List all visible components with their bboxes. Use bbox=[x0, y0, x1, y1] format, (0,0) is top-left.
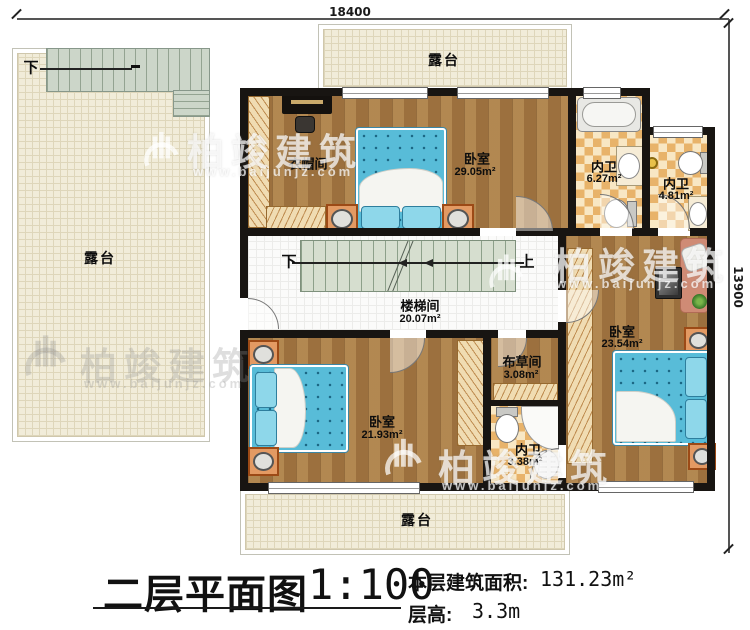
title-underline bbox=[93, 607, 401, 609]
bathtub bbox=[577, 97, 641, 132]
bath2-sink bbox=[689, 202, 707, 226]
stair-direction-line bbox=[40, 68, 132, 70]
watermark-site: www.baijunjz.com bbox=[84, 376, 244, 391]
wall-segment bbox=[526, 330, 566, 338]
window bbox=[457, 87, 549, 99]
dimension-line-top bbox=[17, 18, 729, 20]
stairs-arrow bbox=[424, 259, 433, 267]
brand-logo-icon bbox=[140, 126, 180, 178]
bedroom-top-label: 卧室 bbox=[464, 149, 490, 168]
terrace-top-label: 露台 bbox=[428, 50, 460, 70]
stair-direction-dash bbox=[131, 65, 140, 68]
bed-bottom-blanket bbox=[274, 368, 306, 448]
watermark-site: www.baijunjz.com bbox=[193, 164, 353, 179]
linen-room-area: 3.08m² bbox=[504, 369, 539, 381]
brand-logo-icon bbox=[380, 434, 424, 486]
bed-top-pillow bbox=[402, 206, 441, 229]
stairs-arrow bbox=[398, 259, 407, 267]
window bbox=[653, 126, 703, 138]
watermark: 柏竣建筑 www.baijunjz.com bbox=[135, 118, 385, 188]
wall-segment bbox=[568, 88, 576, 236]
bedroom-right-area: 23.54m² bbox=[602, 338, 643, 350]
bedroom-top-area: 29.05m² bbox=[455, 166, 496, 178]
bed-right-pillow bbox=[685, 357, 707, 397]
dimension-top-value: 18400 bbox=[329, 5, 371, 19]
plant bbox=[692, 294, 707, 309]
watermark: 柏竣建筑 www.baijunjz.com bbox=[380, 432, 630, 494]
wall-segment bbox=[248, 330, 390, 338]
watermark-site: www.baijunjz.com bbox=[556, 276, 716, 291]
outdoor-stairs bbox=[46, 48, 210, 92]
linen-room-label: 布草间 bbox=[502, 352, 541, 371]
wall-segment bbox=[642, 135, 650, 236]
window bbox=[342, 87, 428, 99]
terrace-bottom-label: 露台 bbox=[401, 510, 433, 530]
bath1-area: 6.27m² bbox=[587, 173, 622, 185]
outdoor-stairs-landing bbox=[173, 90, 210, 117]
wall-segment bbox=[491, 400, 558, 406]
outdoor-stairs-down-label: 下 bbox=[23, 57, 38, 78]
wall-segment bbox=[240, 228, 480, 236]
cloakroom-closet-bottom bbox=[266, 206, 326, 230]
brand-logo-icon bbox=[484, 250, 526, 298]
window bbox=[583, 87, 621, 99]
bed-right bbox=[613, 351, 711, 445]
page-title: 二层平面图 bbox=[103, 562, 308, 620]
watermark: 柏竣建筑 www.baijunjz.com bbox=[470, 236, 740, 292]
wall-segment bbox=[642, 88, 650, 135]
floor-area-value: 131.23m² bbox=[540, 567, 636, 591]
nightstand bbox=[248, 447, 279, 476]
wall-segment bbox=[707, 127, 715, 491]
bed-bottom-pillow bbox=[255, 410, 277, 446]
floor-height-value: 3.3m bbox=[472, 599, 520, 623]
stairwell-label: 楼梯间 bbox=[400, 296, 439, 315]
floor-area-label: 本层建筑面积: bbox=[408, 568, 528, 595]
bed-right-pillow bbox=[685, 399, 707, 439]
terrace-left-label: 露台 bbox=[84, 248, 116, 268]
bedroom-bottom-label: 卧室 bbox=[369, 412, 395, 431]
watermark: 柏竣建筑 www.baijunjz.com bbox=[18, 330, 268, 396]
tv-cabinet bbox=[282, 94, 332, 114]
watermark-site: www.baijunjz.com bbox=[442, 478, 602, 493]
brand-logo-icon bbox=[18, 330, 70, 388]
floor-plan: 露台 露台 露台 衣帽间 卧室 29.05m² 内卫 6.27m² 内卫 4.8… bbox=[0, 0, 750, 630]
bath2-toilet bbox=[678, 151, 703, 175]
floor-height-label: 层高: bbox=[408, 600, 452, 627]
stairwell-area: 20.07m² bbox=[400, 313, 441, 325]
bedroom-bottom-wardrobe bbox=[457, 340, 484, 446]
bed-top-pillow bbox=[361, 206, 400, 229]
stairs-down-label: 下 bbox=[281, 251, 296, 272]
wall-segment bbox=[690, 228, 715, 236]
wall-segment bbox=[558, 322, 566, 445]
bath2-area: 4.81m² bbox=[659, 190, 694, 202]
